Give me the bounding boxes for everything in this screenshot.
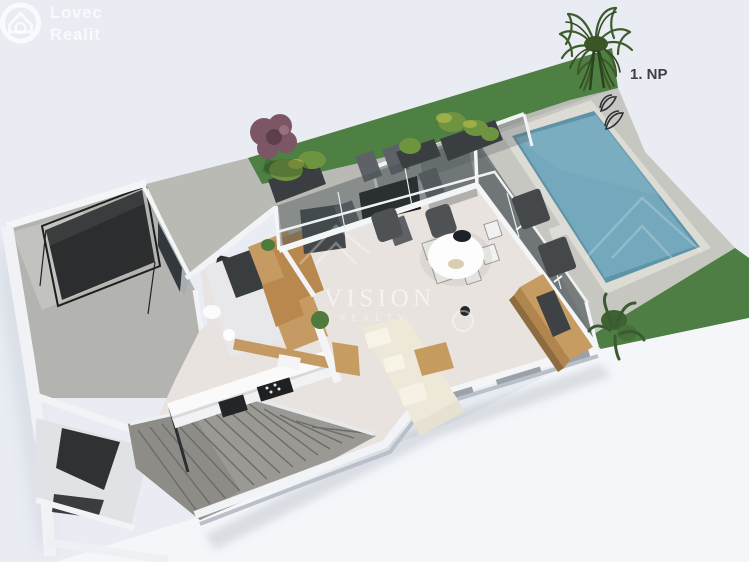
svg-text:Lovec: Lovec — [50, 4, 103, 22]
svg-text:REALTY: REALTY — [339, 313, 409, 324]
svg-text:1. NP: 1. NP — [630, 66, 668, 83]
svg-text:VISION: VISION — [324, 285, 436, 312]
svg-text:Realit: Realit — [50, 26, 101, 44]
